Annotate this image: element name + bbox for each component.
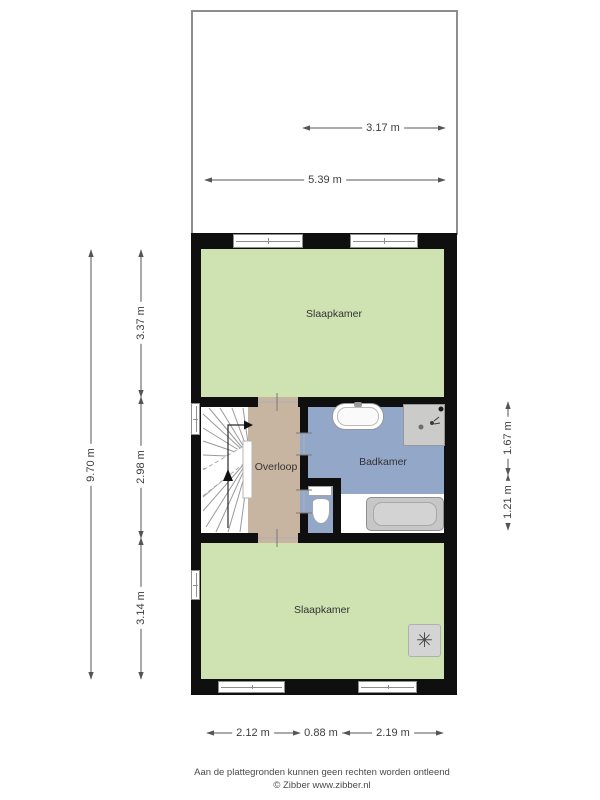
footer: Aan de plattegronden kunnen geen rechten… — [22, 766, 600, 792]
dimension-bottom-right: 2.19 m — [372, 727, 414, 739]
dimension-bottom-middle: 0.88 m — [300, 727, 342, 739]
label-bathroom: Badkamer — [359, 456, 407, 468]
dimension-left-middle: 2.98 m — [135, 446, 147, 488]
dimension-left-top: 3.37 m — [135, 302, 147, 344]
door-opening-bedroom-bottom — [258, 533, 298, 543]
label-landing: Overloop — [255, 461, 298, 473]
dimension-bottom-left: 2.12 m — [232, 727, 274, 739]
door-opening-bedroom-top — [258, 397, 298, 407]
stairwell — [201, 407, 248, 533]
sink-basin — [337, 407, 379, 426]
footer-disclaimer: Aan de plattegronden kunnen geen rechten… — [22, 766, 600, 779]
ventilation-icon: ✳ — [408, 624, 441, 657]
shower — [403, 404, 445, 446]
window-bedroom-bottom-left — [191, 570, 200, 600]
window-bottom-left — [218, 681, 285, 693]
window-bottom-right — [358, 681, 417, 693]
door-opening-toilet — [300, 490, 308, 513]
toilet-cistern — [308, 486, 332, 496]
attic-outline — [191, 10, 458, 235]
dimension-attic-full: 5.39 m — [304, 174, 346, 186]
dimension-left-bottom: 3.14 m — [135, 587, 147, 629]
room-bedroom-top — [201, 249, 444, 397]
window-stairwell — [191, 403, 200, 435]
sink-faucet — [354, 402, 362, 407]
floorplan-canvas: ✳ — [0, 0, 600, 800]
window-top-right — [350, 234, 418, 248]
ventilation-glyph: ✳ — [416, 628, 433, 653]
toilet-bowl — [312, 498, 330, 524]
footer-copyright: © Zibber www.zibber.nl — [22, 779, 600, 792]
dimension-attic-inner: 3.17 m — [362, 122, 404, 134]
dimension-left-total: 9.70 m — [85, 444, 97, 486]
label-bedroom-bottom: Slaapkamer — [294, 604, 350, 616]
bathtub-inner — [373, 502, 437, 526]
door-opening-bathroom — [300, 433, 308, 455]
window-top-left — [233, 234, 303, 248]
label-bedroom-top: Slaapkamer — [306, 308, 362, 320]
dimension-right-bottom: 1.21 m — [502, 481, 514, 523]
dimension-right-top: 1.67 m — [502, 417, 514, 459]
toilet-niche-wall-right — [333, 478, 341, 543]
